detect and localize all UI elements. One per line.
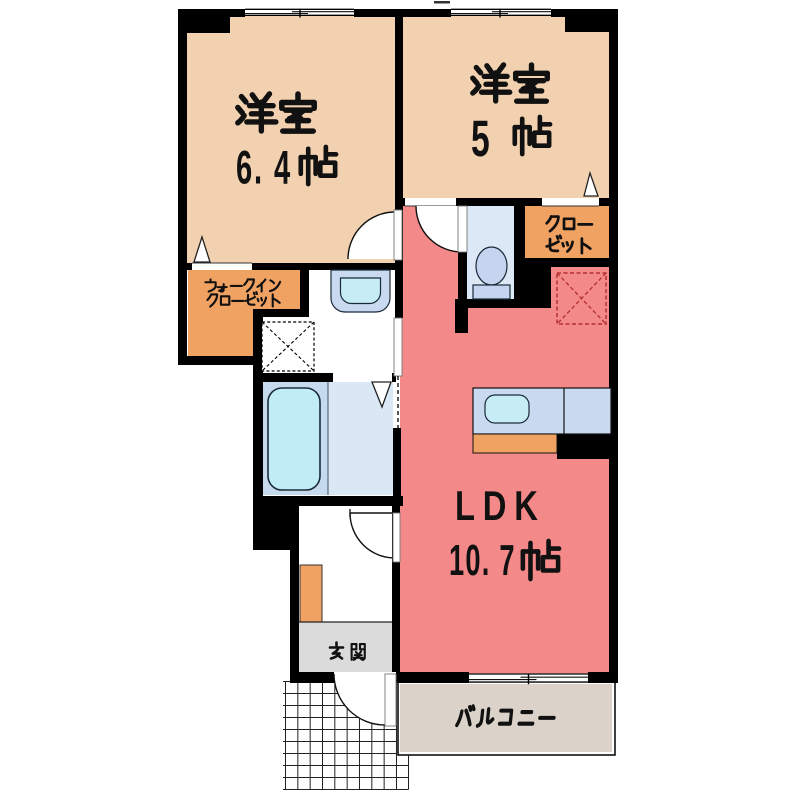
svg-text:LDK: LDK	[455, 482, 546, 529]
svg-text:10. 7: 10. 7	[449, 535, 516, 584]
svg-text:5: 5	[471, 111, 490, 168]
svg-text:6. 4: 6. 4	[236, 143, 292, 195]
